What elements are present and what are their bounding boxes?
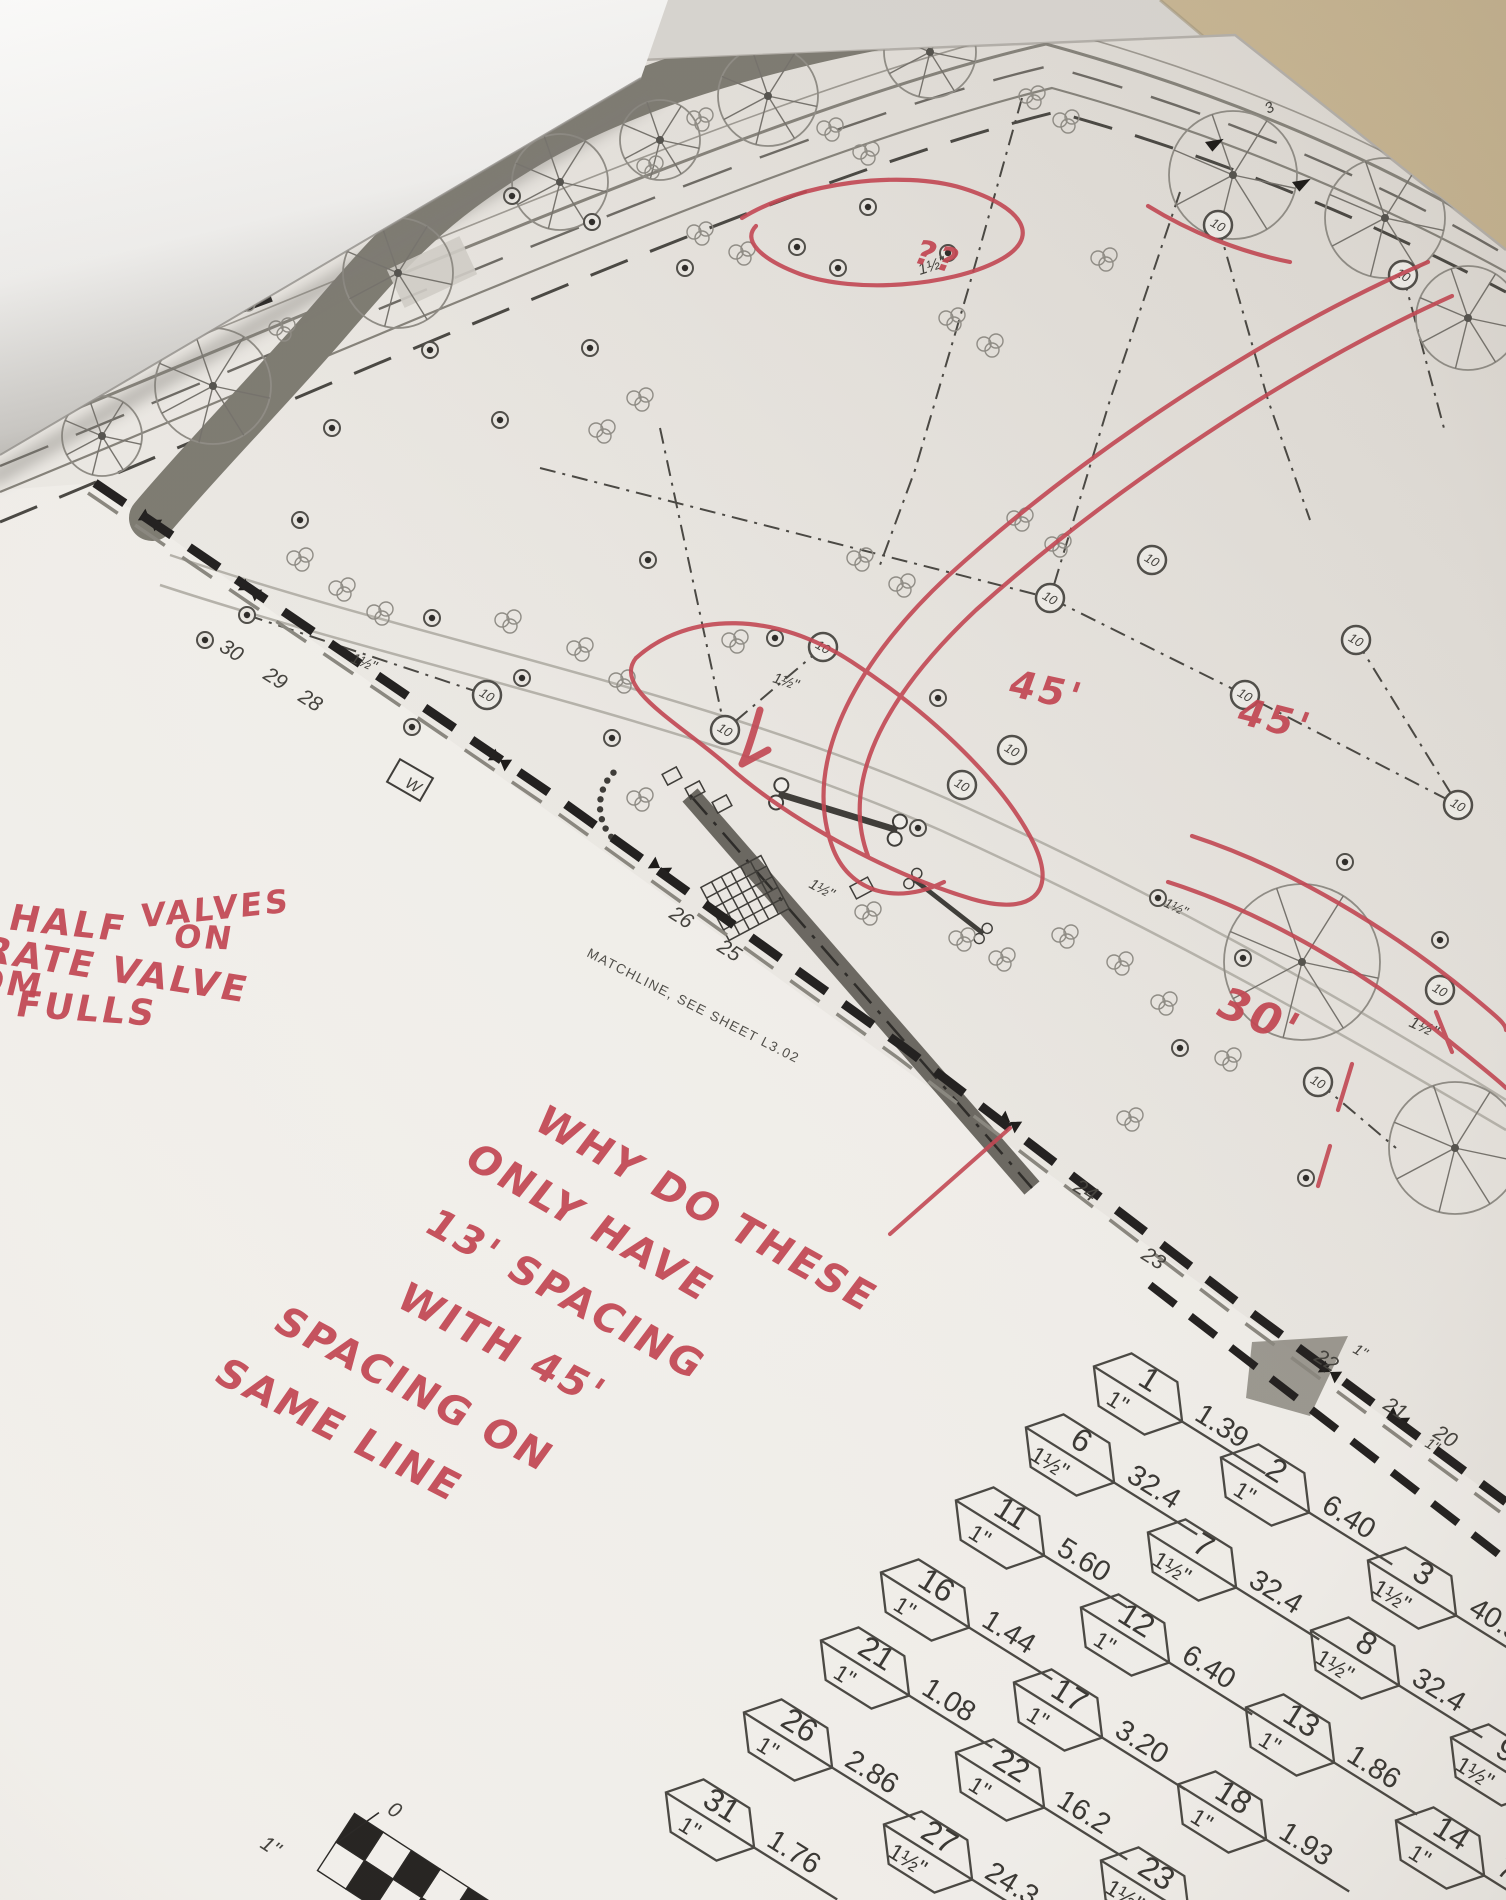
- photo-vignette: [0, 0, 1506, 1900]
- photo-of-plan-sheet: 1010101010101010101010101010 MATCHLINE, …: [0, 0, 1506, 1900]
